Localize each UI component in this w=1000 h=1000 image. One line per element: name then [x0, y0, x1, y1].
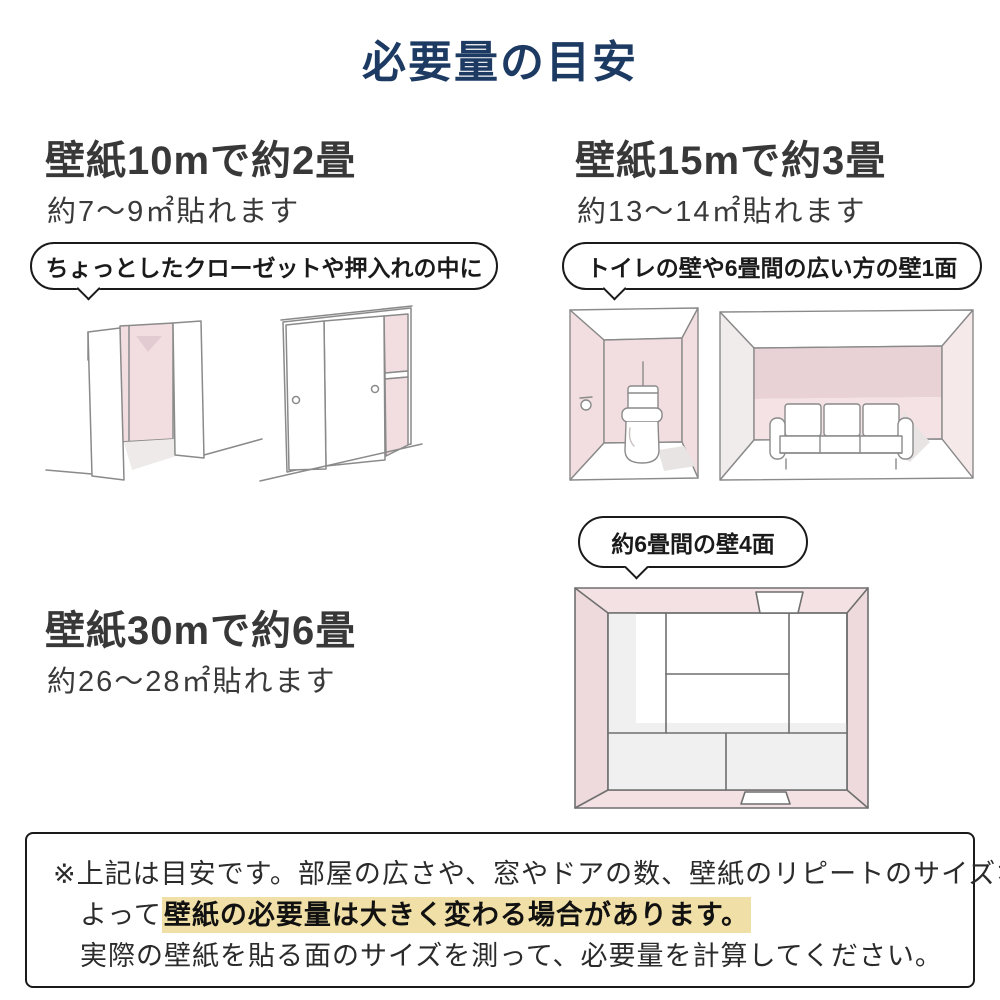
note-line-2-prefix: よって — [80, 900, 162, 930]
section3-bubble-label: 約6畳間の壁4面 — [611, 525, 775, 559]
section2-illustration — [558, 300, 978, 500]
sliding-closet-sketch — [260, 306, 422, 481]
tatami-room-top-view-sketch — [575, 588, 868, 808]
section1-subtext: 約7〜9㎡貼れます — [47, 188, 300, 230]
note-line-1: ※上記は目安です。部屋の広さや、窓やドアの数、壁紙のリピートのサイズなどに — [53, 854, 947, 895]
bubble-tail — [624, 555, 648, 579]
section3-illustration — [572, 584, 872, 812]
section1-illustration — [40, 298, 480, 503]
note-line-3: 実際の壁紙を貼る面のサイズを測って、必要量を計算してください。 — [80, 936, 947, 977]
section2-subtext: 約13〜14㎡貼れます — [577, 188, 867, 230]
section3-bubble: 約6畳間の壁4面 — [578, 516, 808, 568]
section3-heading: 壁紙30mで約6畳 — [45, 598, 356, 656]
note-box: ※上記は目安です。部屋の広さや、窓やドアの数、壁紙のリピートのサイズなどに よっ… — [25, 832, 975, 988]
note-line-2-highlight: 壁紙の必要量は大きく変わる場合があります。 — [162, 897, 751, 933]
section2-heading: 壁紙15mで約3畳 — [575, 128, 886, 186]
page-title: 必要量の目安 — [0, 26, 1000, 90]
living-room-sofa-sketch — [720, 310, 973, 480]
section1-heading: 壁紙10mで約2畳 — [45, 128, 356, 186]
open-closet-sketch — [46, 321, 262, 480]
section1-bubble-label: ちょっとしたクローゼットや押入れの中に — [46, 249, 483, 283]
section2-bubble: トイレの壁や6畳間の広い方の壁1面 — [562, 242, 982, 290]
section2-bubble-label: トイレの壁や6畳間の広い方の壁1面 — [587, 249, 958, 283]
toilet-room-sketch — [570, 308, 698, 480]
section3-subtext: 約26〜28㎡貼れます — [47, 658, 337, 700]
doorway-threshold — [741, 792, 790, 804]
note-line-2: よって壁紙の必要量は大きく変わる場合があります。 — [80, 895, 947, 936]
section1-bubble: ちょっとしたクローゼットや押入れの中に — [30, 242, 498, 290]
infographic-page: 必要量の目安 壁紙10mで約2畳 約7〜9㎡貼れます ちょっとしたクローゼットや… — [0, 0, 1000, 1000]
door-opening — [756, 592, 803, 613]
